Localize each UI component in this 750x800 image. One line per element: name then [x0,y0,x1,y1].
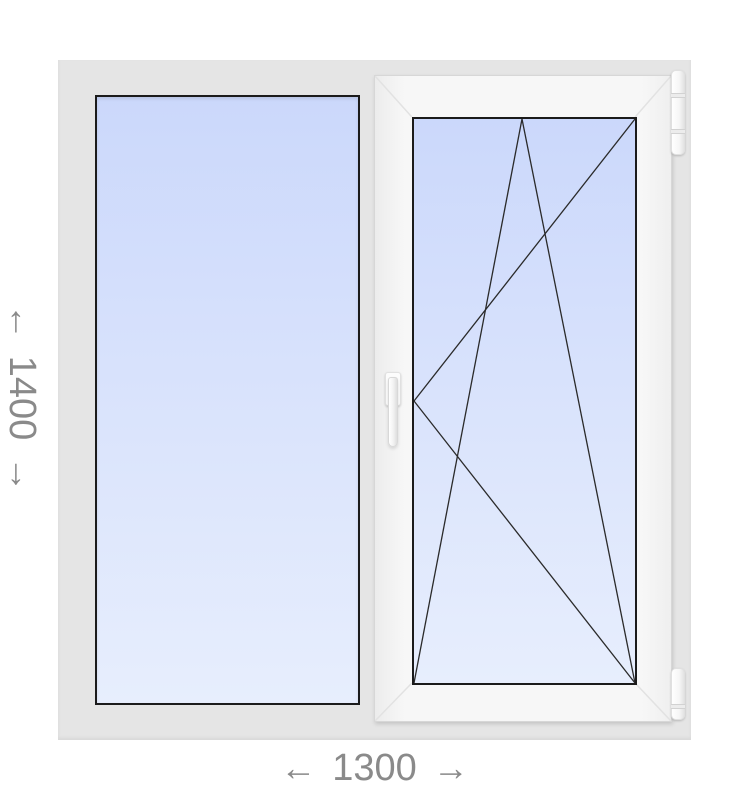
hinge-ring [671,93,685,98]
arrow-left-icon: ← [280,744,316,792]
fixed-glass-pane[interactable] [95,95,360,705]
hinge-ring [671,704,685,709]
tilt-turn-sash[interactable] [374,75,672,722]
window-outer-frame [58,60,691,740]
height-dimension-label: ← 1400 → [0,238,46,558]
window-handle [388,377,398,447]
arrow-right-icon: → [433,744,469,792]
width-dimension-label: ← 1300 → [58,744,691,792]
turn-line-top [414,119,635,401]
opening-direction-lines [414,119,635,683]
window-configurator-preview: ← 1300 → ← 1400 → [0,0,750,800]
arrow-down-icon: → [0,456,46,492]
height-value: 1400 [0,356,46,441]
arrow-up-icon: ← [0,304,46,340]
width-value: 1300 [332,744,417,792]
bottom-hinge-icon [671,668,685,720]
top-hinge-icon [671,70,685,155]
sash-glass-pane [412,117,637,685]
tilt-line-left [414,119,522,683]
turn-line-bottom [414,401,635,683]
tilt-line-right [522,119,635,683]
hinge-ring [671,129,685,134]
